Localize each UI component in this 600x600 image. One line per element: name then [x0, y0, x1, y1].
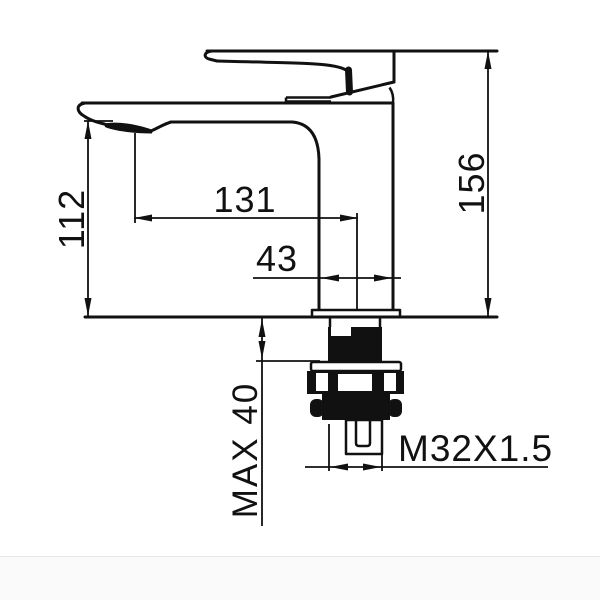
dim-112-arrow-down	[85, 298, 92, 316]
dim-131-arrow-right	[340, 215, 358, 222]
nut-center	[338, 374, 372, 391]
drawing-canvas: 112 131 43 156 MAX 40 M32X1.5	[0, 0, 600, 600]
faucet-technical-drawing: 112 131 43 156 MAX 40 M32X1.5	[0, 0, 600, 600]
dim-112-label: 112	[51, 189, 92, 249]
dim-131-line	[134, 133, 358, 310]
handle-pivot	[349, 70, 350, 92]
dim-156-label: 156	[451, 151, 492, 214]
inlet-stub	[346, 420, 382, 454]
dim-max40-arrow-up	[259, 319, 266, 337]
dim-156-arrow-down	[485, 298, 492, 316]
nut-slot-left	[316, 373, 328, 391]
dimension-spout-height: 112	[51, 121, 113, 316]
dim-thread-arrow-left	[330, 464, 348, 471]
dimension-body-depth: 43	[253, 238, 401, 282]
body-fillet	[292, 122, 319, 159]
dim-156-arrow-up	[485, 51, 492, 69]
handle-diagonal	[331, 82, 394, 97]
mounting-hardware	[307, 317, 404, 454]
dimension-overall-height: 156	[451, 51, 492, 316]
dim-131-label: 131	[213, 179, 276, 220]
dim-thread-arrow-right	[363, 464, 381, 471]
spout-outlet	[105, 123, 153, 134]
dim-43-arrow-left	[321, 275, 339, 282]
dimension-max-deck: MAX 40	[226, 317, 320, 526]
thread-spec-label: M32X1.5	[398, 428, 553, 469]
handle-underside	[217, 61, 346, 70]
hose-block	[322, 394, 390, 420]
dim-max40-line	[256, 317, 320, 526]
side-tab-right	[388, 399, 402, 417]
dim-43-arrow-right	[374, 275, 392, 282]
dimension-spout-reach: 131	[134, 133, 358, 310]
handle-fillet-arc	[390, 88, 394, 104]
nut-slot-right	[384, 373, 396, 391]
dim-43-label: 43	[256, 238, 298, 279]
dim-max40-arrow-down	[259, 341, 266, 359]
washer	[311, 362, 401, 371]
thread-notch	[331, 327, 351, 336]
spout-underside-rise	[152, 122, 171, 131]
dim-131-arrow-left	[134, 215, 152, 222]
dimension-thread: M32X1.5	[305, 424, 553, 471]
side-tab-left	[310, 399, 324, 417]
dim-max40-label: MAX 40	[226, 382, 265, 519]
page-footer-strip	[0, 556, 600, 600]
cartridge-collar	[286, 98, 331, 102]
dim-112-arrow-up	[85, 121, 92, 139]
